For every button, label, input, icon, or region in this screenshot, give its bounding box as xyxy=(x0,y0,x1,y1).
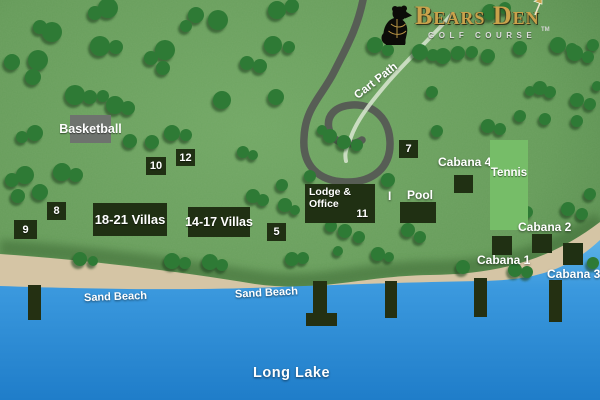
site-7: 7 xyxy=(399,140,418,158)
lake-label: Long Lake xyxy=(253,366,330,381)
villas-18-21: 18-21 Villas xyxy=(93,203,167,236)
dock xyxy=(306,313,337,326)
villas-14-17: 14-17 Villas xyxy=(188,207,250,237)
dock xyxy=(313,281,327,317)
cabana-2-label: Cabana 2 xyxy=(518,221,571,233)
tennis-court: Tennis xyxy=(490,140,528,230)
dock xyxy=(474,278,487,317)
site-11: 11 xyxy=(356,208,368,220)
flag-marker: I xyxy=(388,190,391,202)
cabana-3 xyxy=(563,243,583,265)
tennis-label: Tennis xyxy=(491,167,527,179)
logo: Bears Den GOLF COURSE TM xyxy=(378,3,540,47)
site-8: 8 xyxy=(47,202,66,220)
site-5: 5 xyxy=(267,223,286,241)
logo-trademark: TM xyxy=(541,27,550,33)
cabana-3-label: Cabana 3 xyxy=(547,268,600,280)
cabana-2 xyxy=(532,234,552,253)
cabana-4-label: Cabana 4 xyxy=(438,156,491,168)
basketball-court: Basketball xyxy=(70,115,111,143)
lodge-label: Lodge & Office xyxy=(309,187,351,211)
pool-label: Pool xyxy=(407,189,433,201)
sand-beach-label-left: Sand Beach xyxy=(84,291,147,304)
site-9: 9 xyxy=(14,220,37,239)
site-12: 12 xyxy=(176,149,195,166)
dock xyxy=(385,281,397,318)
cabana-1-label: Cabana 1 xyxy=(477,254,530,266)
dock xyxy=(549,280,562,322)
logo-subtitle: GOLF COURSE xyxy=(415,31,540,40)
basketball-label: Basketball xyxy=(59,122,122,136)
dock xyxy=(28,285,41,320)
lodge-office: Lodge & Office 11 xyxy=(305,184,375,223)
logo-text: Bears Den GOLF COURSE TM xyxy=(415,3,540,40)
logo-title: Bears Den xyxy=(415,3,540,29)
cabana-4 xyxy=(454,175,473,193)
golf-flag-icon xyxy=(531,0,546,16)
pool xyxy=(400,202,436,223)
site-10: 10 xyxy=(146,157,166,175)
resort-map: Basketball 10 12 8 9 18-21 Villas 14-17 … xyxy=(0,0,600,400)
bear-icon xyxy=(378,3,414,47)
